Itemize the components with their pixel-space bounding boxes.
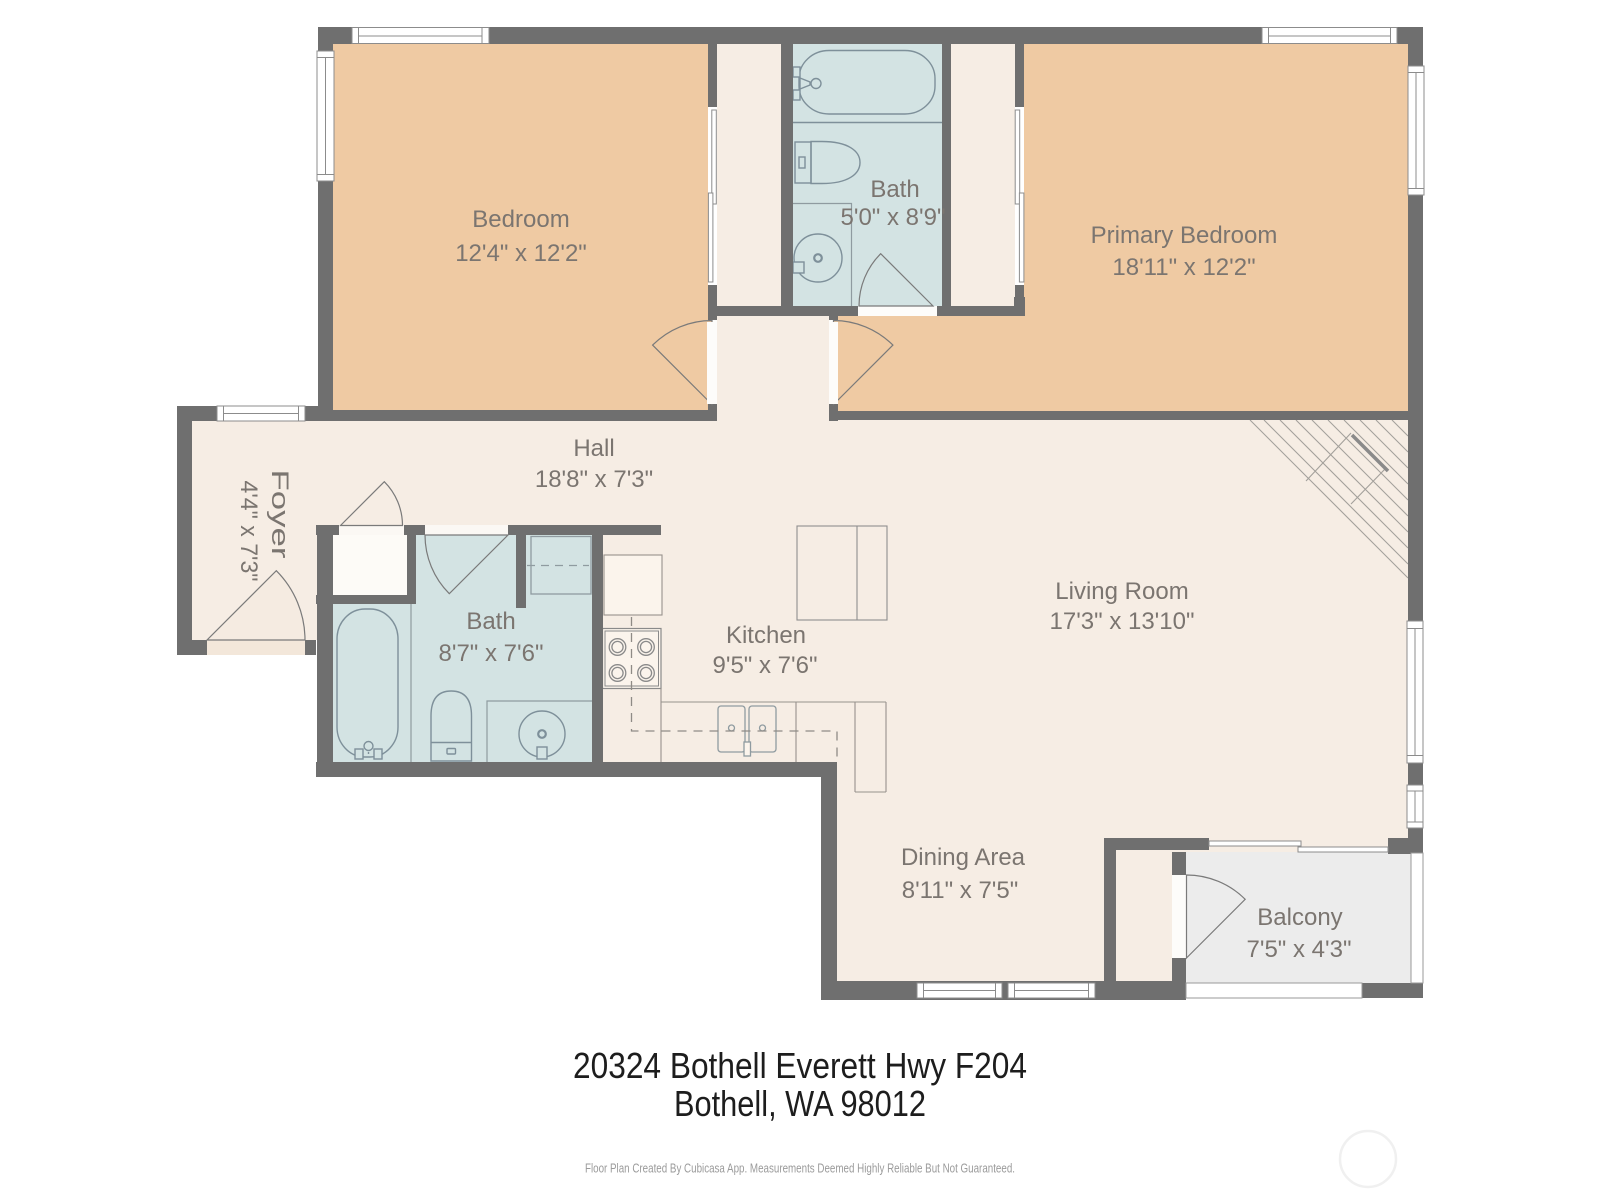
svg-text:7'5" x 4'3": 7'5" x 4'3"	[1247, 936, 1352, 963]
svg-text:18'8" x 7'3": 18'8" x 7'3"	[535, 466, 653, 493]
svg-text:Living Room: Living Room	[1055, 578, 1188, 605]
svg-text:18'11" x 12'2": 18'11" x 12'2"	[1112, 254, 1255, 281]
svg-text:4'4" x 7'3": 4'4" x 7'3"	[235, 481, 262, 582]
svg-text:20324 Bothell Everett Hwy F204: 20324 Bothell Everett Hwy F204	[573, 1045, 1027, 1086]
svg-text:Bath: Bath	[466, 608, 515, 635]
svg-text:Balcony: Balcony	[1257, 904, 1342, 931]
svg-text:Kitchen: Kitchen	[726, 622, 806, 649]
svg-text:Foyer: Foyer	[266, 470, 293, 559]
svg-text:Bothell, WA 98012: Bothell, WA 98012	[674, 1083, 926, 1124]
svg-text:9'5" x 7'6": 9'5" x 7'6"	[713, 652, 818, 679]
svg-text:5'0" x 8'9": 5'0" x 8'9"	[841, 204, 946, 231]
svg-text:17'3" x 13'10": 17'3" x 13'10"	[1050, 608, 1195, 635]
svg-text:Floor Plan Created By Cubicasa: Floor Plan Created By Cubicasa App. Meas…	[585, 1162, 1015, 1176]
svg-text:8'11" x 7'5": 8'11" x 7'5"	[902, 877, 1019, 904]
svg-text:8'7" x 7'6": 8'7" x 7'6"	[439, 640, 544, 667]
svg-text:Dining Area: Dining Area	[901, 844, 1026, 871]
svg-text:12'4" x 12'2": 12'4" x 12'2"	[455, 240, 587, 267]
svg-text:Primary Bedroom: Primary Bedroom	[1091, 222, 1278, 249]
svg-text:Hall: Hall	[573, 435, 614, 462]
svg-text:Bath: Bath	[870, 176, 919, 203]
svg-text:Bedroom: Bedroom	[472, 206, 569, 233]
